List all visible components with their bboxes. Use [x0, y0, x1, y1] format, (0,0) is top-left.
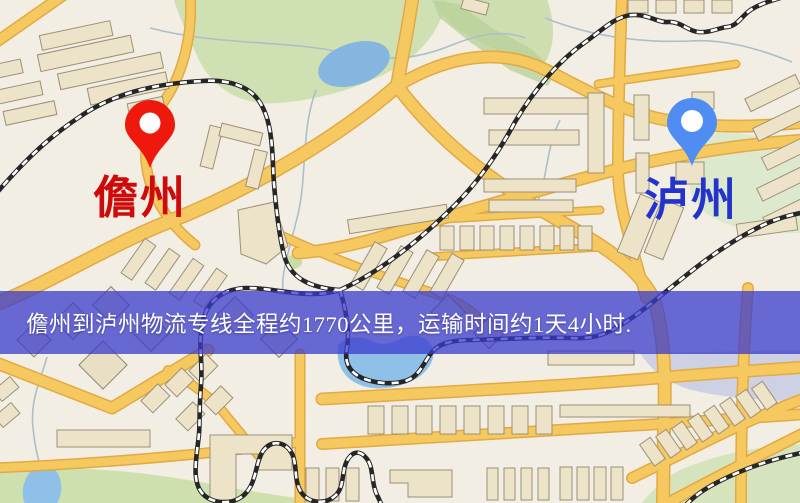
origin-pin[interactable] — [125, 100, 175, 168]
route-map: 儋州到泸州物流专线全程约1770公里，运输时间约1天4小时. 儋州 泸州 — [0, 0, 800, 503]
route-info-banner: 儋州到泸州物流专线全程约1770公里，运输时间约1天4小时. — [0, 291, 800, 354]
origin-city-label: 儋州 — [93, 176, 187, 221]
destination-city-label: 泸州 — [644, 178, 738, 223]
map-canvas — [0, 0, 800, 503]
route-info-text: 儋州到泸州物流专线全程约1770公里，运输时间约1天4小时. — [26, 307, 632, 339]
origin-pin-icon — [125, 100, 175, 168]
